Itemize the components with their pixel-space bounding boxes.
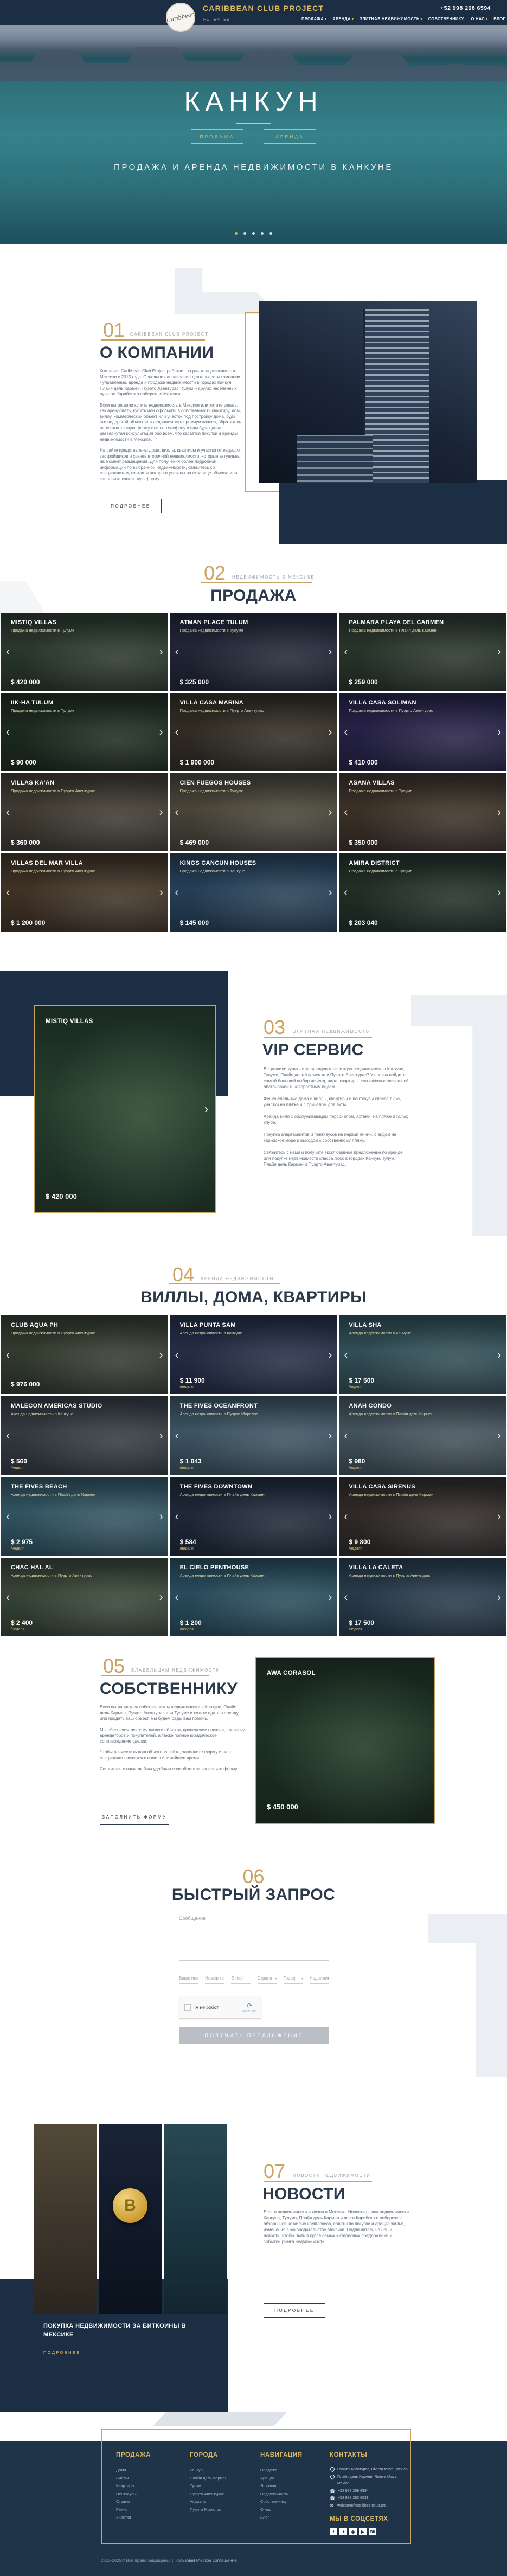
footer-column-sale: ПРОДАЖА ДомаВиллыКвартирыПентхаусыСтудии…	[116, 2452, 190, 2535]
hero-skyline-image	[0, 47, 507, 81]
prev-arrow-icon[interactable]: ‹	[175, 646, 179, 658]
price-value: $ 469 000	[180, 839, 209, 846]
section-number: 04	[172, 1263, 194, 1286]
property-price: $ 360 000	[11, 839, 40, 846]
next-arrow-icon[interactable]: ›	[497, 1430, 501, 1441]
paragraph: Мы обеспечим рекламу вашего объекта, про…	[100, 1727, 245, 1745]
property-price: $ 11 900/неделя	[180, 1377, 205, 1389]
prev-arrow-icon[interactable]: ‹	[175, 887, 179, 898]
next-arrow-icon[interactable]: ›	[497, 1511, 501, 1522]
footer-link[interactable]: Аренда	[260, 2475, 330, 2483]
property-title: IIK-HA TULUM	[11, 699, 53, 706]
next-arrow-icon[interactable]: ›	[497, 646, 501, 658]
recaptcha-logo: ⟳ reCAPTCHA	[242, 2002, 256, 2012]
recaptcha-label: Я не робот	[195, 2005, 219, 2010]
property-card[interactable]: VILLAS KA'AN Продажа недвижимости в Пуэр…	[1, 773, 168, 851]
footer-contact-row[interactable]: welcome@caribbeanclub.pro	[330, 2503, 409, 2510]
owner-featured-card[interactable]: AWA CORASOL $ 450 000	[255, 1657, 435, 1824]
price-period: /неделя	[180, 1385, 205, 1389]
contact-icon	[330, 2503, 335, 2508]
next-arrow-icon[interactable]: ›	[159, 1430, 163, 1441]
footer-link[interactable]: Акумаль	[190, 2498, 260, 2506]
paragraph: Компания Caribbean Club Project работает…	[100, 369, 242, 397]
chevron-down-icon: ▾	[275, 1977, 277, 1981]
featured-price: $ 420 000	[46, 1192, 77, 1200]
nav-item-label: СОБСТВЕННИКУ	[428, 16, 464, 21]
hero-sale-button[interactable]: ПРОДАЖА	[191, 129, 243, 144]
footer-link[interactable]: Канкун	[190, 2466, 260, 2475]
price-value: $ 17 500	[349, 1377, 374, 1384]
property-card[interactable]: MISTIQ VILLAS Продажа недвижимости в Тул…	[1, 613, 168, 691]
sale-heading: ПРОДАЖА	[0, 587, 507, 605]
price-value: $ 1 200	[180, 1619, 202, 1627]
section-rule	[264, 1037, 372, 1038]
nav-item[interactable]: ЭЛИТНАЯ НЕДВИЖИМОСТЬ▾	[360, 16, 422, 21]
property-title: VILLA CASA SIRENUS	[349, 1483, 415, 1490]
footer-contact-row[interactable]: Плайя дель Кармен, Riviera Maya, Mexico	[330, 2474, 409, 2488]
nav-item[interactable]: СОБСТВЕННИКУ	[428, 16, 465, 21]
contact-text: Пуэрто Авентурас, Riviera Maya, Mexico	[337, 2466, 408, 2474]
social-icon[interactable]: ◉	[349, 2528, 357, 2535]
hero-underline	[236, 123, 271, 124]
property-title: PALMARA PLAYA DEL CARMEN	[349, 619, 444, 626]
next-arrow-icon[interactable]: ›	[497, 807, 501, 818]
property-card[interactable]: ASANA VILLAS Продажа недвижимости в Тулу…	[339, 773, 506, 851]
prev-arrow-icon[interactable]: ‹	[344, 1591, 348, 1603]
property-location: Аренда недвижимости в Плайя дель Кармен	[11, 1492, 95, 1497]
page: КАНКУН ПРОДАЖА АРЕНДА ПРОДАЖА И АРЕНДА Н…	[0, 0, 507, 2576]
section-number: 02	[204, 562, 226, 584]
slider-dot[interactable]	[261, 232, 264, 235]
rent-heading: ВИЛЛЫ, ДОМА, КВАРТИРЫ	[0, 1288, 507, 1307]
section-tagline: НЕДВИЖИМОСТЬ В МЕКСИКЕ	[232, 575, 315, 580]
property-location: Продажа недвижимости в Плайя дель Кармен	[349, 628, 436, 633]
prev-arrow-icon[interactable]: ‹	[175, 727, 179, 738]
submit-button[interactable]: ПОЛУЧИТЬ ПРЕДЛОЖЕНИЕ	[179, 2027, 329, 2044]
property-location: Продажа недвижимости в Пуэрто Авентурас	[180, 708, 264, 713]
prev-arrow-icon[interactable]: ‹	[6, 887, 10, 898]
price-value: $ 9 800	[349, 1538, 370, 1546]
form-fields-row: ▾ ▾ ▾	[179, 1973, 329, 1984]
footer-link[interactable]: Недвижимость	[260, 2490, 330, 2498]
property-title: THE FIVES BEACH	[11, 1483, 67, 1490]
footer-column-title: ГОРОДА	[190, 2452, 260, 2458]
footer-link[interactable]: Элитная	[260, 2482, 330, 2490]
property-title: CLUB AQUA PH	[11, 1322, 58, 1328]
copyright: 2015-2025© Все права защищены. | Пользов…	[101, 2558, 237, 2563]
prev-arrow-icon[interactable]: ‹	[6, 727, 10, 738]
property-title: VILLA SHA	[349, 1322, 381, 1328]
property-location: Продажа недвижимости в Пуэрто Авентурас	[11, 788, 95, 793]
prev-arrow-icon[interactable]: ‹	[344, 646, 348, 658]
prev-arrow-icon[interactable]: ‹	[6, 1591, 10, 1603]
social-icon[interactable]: ▶	[359, 2528, 367, 2535]
property-price: $ 976 000	[11, 1380, 40, 1389]
next-arrow-icon[interactable]: ›	[328, 1511, 332, 1522]
next-arrow-icon[interactable]: ›	[497, 1591, 501, 1603]
owner-form-button[interactable]: ЗАПОЛНИТЬ ФОРМУ	[100, 1810, 169, 1825]
footer-link[interactable]: Квартиры	[116, 2482, 190, 2490]
section-rule	[264, 2181, 372, 2182]
recaptcha-widget: Я не робот ⟳ reCAPTCHA	[179, 1996, 261, 2019]
property-card[interactable]: ANAH CONDO Аренда недвижимости в Плайя д…	[339, 1396, 506, 1475]
price-value: $ 1 200 000	[11, 919, 45, 927]
prev-arrow-icon[interactable]: ‹	[344, 1430, 348, 1441]
news-heading: НОВОСТИ	[262, 2185, 345, 2204]
property-title: CHAC HAL AL	[11, 1564, 53, 1571]
news-photo-strip[interactable]: B	[99, 2124, 162, 2314]
news-feature-title[interactable]: Покупка недвижимости за биткоины в Мекси…	[43, 2322, 211, 2339]
property-location: Аренда недвижимости в Пуэрто Морелос	[180, 1411, 258, 1416]
property-title: VILLA LA CALETA	[349, 1564, 403, 1571]
property-card[interactable]: KINGS CANCUN HOUSES Продажа недвижимости…	[170, 853, 337, 932]
next-arrow-icon[interactable]: ›	[497, 1349, 501, 1360]
prev-arrow-icon[interactable]: ‹	[344, 727, 348, 738]
property-title: VILLAS DEL MAR VILLA	[11, 860, 83, 866]
news-feature-link[interactable]: ПОДРОБНЕЕ	[43, 2350, 81, 2355]
property-card[interactable]: CLUB AQUA PH Продажа недвижимости в Пуэр…	[1, 1315, 168, 1394]
sale-grid: MISTIQ VILLAS Продажа недвижимости в Тул…	[1, 613, 506, 932]
chevron-down-icon: ▾	[325, 18, 326, 21]
footer-column-cities: ГОРОДА КанкунПлайя дель КарменТулумПуэрт…	[190, 2452, 260, 2535]
vip-text: Вы решили купить или арендовать элитную …	[264, 1066, 409, 1173]
nav-item-label: ЭЛИТНАЯ НЕДВИЖИМОСТЬ	[360, 16, 420, 21]
paragraph: На сайте представлены дома, виллы, кварт…	[100, 448, 242, 482]
hero-title: КАНКУН	[0, 86, 507, 117]
hero-banner: КАНКУН ПРОДАЖА АРЕНДА ПРОДАЖА И АРЕНДА Н…	[0, 0, 507, 244]
property-location: Продажа недвижимости в Тулуме	[180, 788, 243, 793]
property-card[interactable]: AMIRA DISTRICT Продажа недвижимости в Ту…	[339, 853, 506, 932]
price-value: $ 410 000	[349, 759, 377, 766]
nav-item[interactable]: О НАС▾	[471, 16, 488, 21]
property-price: $ 2 975/неделя	[11, 1538, 33, 1551]
property-title: MALECON AMERICAS STUDIO	[11, 1403, 102, 1409]
property-location: Продажа недвижимости в Тулуме	[180, 628, 243, 633]
contact-text: +52 998 268 6594	[338, 2488, 369, 2495]
price-period: /неделя	[349, 1547, 370, 1551]
text-input[interactable]	[179, 1974, 198, 1984]
language-option[interactable]: ES	[223, 17, 229, 22]
price-value: $ 2 400	[11, 1619, 33, 1627]
hero-rent-button[interactable]: АРЕНДА	[264, 129, 316, 144]
next-arrow-icon[interactable]: ›	[159, 807, 163, 818]
social-icon[interactable]: ✈	[339, 2528, 347, 2535]
prev-arrow-icon[interactable]: ‹	[6, 1430, 10, 1441]
property-card[interactable]: THE FIVES BEACH Аренда недвижимости в Пл…	[1, 1477, 168, 1556]
price-period: /неделя	[349, 1628, 374, 1631]
price-value: $ 90 000	[11, 759, 36, 766]
footer-contact-row[interactable]: +52 998 268 6594	[330, 2488, 409, 2495]
price-value: $ 980	[349, 1457, 365, 1465]
news-more-button[interactable]: ПОДРОБНЕЕ	[264, 2303, 325, 2318]
footer-column-title: ПРОДАЖА	[116, 2452, 190, 2458]
footer-link[interactable]: О нас	[260, 2506, 330, 2514]
next-arrow-icon[interactable]: ›	[159, 646, 163, 658]
brand-logo-text: Caribbean	[166, 11, 195, 23]
building-image	[259, 301, 477, 483]
slider-dot[interactable]	[235, 232, 238, 235]
property-card[interactable]: MALECON AMERICAS STUDIO Аренда недвижимо…	[1, 1396, 168, 1475]
featured-price: $ 450 000	[267, 1803, 298, 1811]
price-value: $ 325 000	[180, 678, 209, 686]
chevron-down-icon: ▾	[301, 1977, 303, 1981]
property-price: $ 410 000	[349, 759, 377, 766]
property-price: $ 2 400/неделя	[11, 1619, 33, 1631]
brand-title: CARIBBEAN CLUB PROJECT	[203, 4, 324, 12]
next-arrow-icon[interactable]: ›	[328, 727, 332, 738]
property-location: Аренда недвижимости в Пуэрто Авентурас	[11, 1573, 92, 1578]
next-arrow-icon[interactable]: ›	[159, 1349, 163, 1360]
property-price: $ 203 040	[349, 919, 377, 927]
news-photo-strip[interactable]	[34, 2124, 97, 2314]
prev-arrow-icon[interactable]: ‹	[6, 807, 10, 818]
section-rule	[201, 582, 312, 583]
footer-link[interactable]: Продажа	[260, 2466, 330, 2475]
watermark-shape	[428, 1914, 507, 2077]
next-arrow-icon[interactable]: ›	[328, 1591, 332, 1603]
property-price: $ 145 000	[180, 919, 209, 927]
property-location: Продажа недвижимости в Пуэрто Авентурас	[349, 708, 433, 713]
section-tagline: CARIBBEAN CLUB PROJECT	[130, 332, 209, 337]
property-location: Аренда недвижимости в Плайя дель Кармен	[180, 1573, 265, 1578]
nav-item[interactable]: ПРОДАЖА▾	[301, 16, 326, 21]
property-title: VILLA PUNTA SAM	[180, 1322, 236, 1328]
hero-subtitle: ПРОДАЖА И АРЕНДА НЕДВИЖИМОСТИ В КАНКУНЕ	[0, 163, 507, 172]
next-arrow-icon[interactable]: ›	[328, 646, 332, 658]
paragraph: Блог о недвижимости и жизни в Мексике. Н…	[264, 2209, 410, 2245]
text-input[interactable]	[258, 1974, 277, 1984]
price-value: $ 360 000	[11, 839, 40, 846]
property-card[interactable]: PALMARA PLAYA DEL CARMEN Продажа недвижи…	[339, 613, 506, 691]
property-location: Продажа недвижимости в Тулуме	[11, 708, 74, 713]
text-input[interactable]	[310, 1974, 329, 1984]
footer-contact-row[interactable]: Пуэрто Авентурас, Riviera Maya, Mexico	[330, 2466, 409, 2474]
property-title: CIEN FUEGOS HOUSES	[180, 780, 251, 786]
property-location: Аренда недвижимости в Канкуне	[180, 1331, 242, 1335]
slider-dot[interactable]	[252, 232, 255, 235]
next-arrow-icon[interactable]: ›	[159, 1591, 163, 1603]
nav-item[interactable]: АРЕНДА▾	[332, 16, 354, 21]
header-phone[interactable]: +52 998 268 6594	[440, 5, 491, 11]
nav-item-label: БЛОГ	[493, 16, 505, 21]
property-title: ASANA VILLAS	[349, 780, 394, 786]
text-input[interactable]	[205, 1974, 224, 1984]
property-location: Продажа недвижимости в Канкуне	[180, 869, 245, 873]
contact-text: +52 998 263 6031	[338, 2495, 369, 2502]
price-period: /неделя	[349, 1385, 374, 1389]
property-location: Аренда недвижимости в Канкуне	[349, 1331, 411, 1335]
section-number: 07	[264, 2160, 285, 2183]
prev-arrow-icon[interactable]: ‹	[6, 1349, 10, 1360]
about-heading: О КОМПАНИИ	[100, 344, 214, 362]
nav-item-label: О НАС	[471, 16, 485, 21]
footer-link[interactable]: Собственнику	[260, 2498, 330, 2506]
paragraph: Свяжитесь с нами и получите эксклюзивное…	[264, 1149, 409, 1167]
slider-dot[interactable]	[269, 232, 272, 235]
prev-arrow-icon[interactable]: ‹	[6, 646, 10, 658]
footer-link[interactable]: Плайя дель Кармен	[190, 2475, 260, 2483]
property-location: Аренда недвижимости в Канкуне	[11, 1411, 73, 1416]
property-location: Продажа недвижимости в Тулуме	[349, 869, 412, 873]
recaptcha-icon: ⟳	[247, 2002, 252, 2009]
next-arrow-icon[interactable]: ›	[328, 1349, 332, 1360]
property-price: $ 17 500/неделя	[349, 1619, 374, 1631]
footer-link[interactable]: Студии	[116, 2498, 190, 2506]
news-photo-strip[interactable]	[164, 2124, 227, 2314]
form-field: ▾	[284, 1973, 303, 1984]
contact-icon	[330, 2467, 335, 2472]
section-tagline: НОВОСТИ НЕДВИЖИМОСТИ	[293, 2173, 370, 2178]
property-card[interactable]: VILLA SHA Аренда недвижимости в Канкуне …	[339, 1315, 506, 1394]
vip-featured-card[interactable]: MISTIQ VILLAS $ 420 000 ›	[34, 1005, 216, 1213]
recaptcha-checkbox[interactable]	[184, 2004, 191, 2011]
language-option[interactable]: EN	[214, 17, 220, 22]
contact-icon	[330, 2489, 335, 2494]
property-location: Аренда недвижимости в Плайя дель Кармен	[349, 1411, 433, 1416]
footer-link[interactable]: Ранчо	[116, 2506, 190, 2514]
footer-columns: ПРОДАЖА ДомаВиллыКвартирыПентхаусыСтудии…	[116, 2452, 409, 2535]
price-value: $ 420 000	[11, 678, 40, 686]
contact-text: welcome@caribbeanclub.pro	[337, 2503, 386, 2510]
section-rule	[169, 1283, 280, 1284]
property-card[interactable]: VILLA PUNTA SAM Аренда недвижимости в Ка…	[170, 1315, 337, 1394]
owner-heading: СОБСТВЕННИКУ	[100, 1680, 238, 1698]
owner-text: Если вы являетесь собственником недвижим…	[100, 1705, 245, 1778]
property-location: Аренда недвижимости в Плайя дель Кармен	[180, 1492, 265, 1497]
property-title: AMIRA DISTRICT	[349, 860, 400, 866]
next-arrow-icon[interactable]: ›	[159, 1511, 163, 1522]
next-arrow-icon[interactable]: ›	[328, 1430, 332, 1441]
property-card[interactable]: VILLAS DEL MAR VILLA Продажа недвижимост…	[1, 853, 168, 932]
slider-dot[interactable]	[243, 232, 246, 235]
text-input[interactable]	[231, 1974, 251, 1984]
podium-graphic	[297, 435, 373, 483]
prev-arrow-icon[interactable]: ‹	[175, 1511, 179, 1522]
footer-social-title: МЫ В СОЦСЕТЯХ	[330, 2516, 409, 2522]
copyright-text: 2015-2025© Все права защищены. |	[101, 2558, 174, 2563]
next-arrow-icon[interactable]: ›	[328, 887, 332, 898]
news-text: Блог о недвижимости и жизни в Мексике. Н…	[264, 2209, 410, 2250]
property-card[interactable]: VILLA CASA SIRENUS Аренда недвижимости в…	[339, 1477, 506, 1556]
property-location: Продажа недвижимости в Пуэрто Авентурас	[11, 869, 95, 873]
next-arrow-icon[interactable]: ›	[497, 727, 501, 738]
property-card[interactable]: VILLA LA CALETA Аренда недвижимости в Пу…	[339, 1558, 506, 1636]
text-input[interactable]	[284, 1974, 303, 1984]
prev-arrow-icon[interactable]: ‹	[175, 1349, 179, 1360]
prev-arrow-icon[interactable]: ‹	[344, 807, 348, 818]
footer-link[interactable]: Блог	[260, 2514, 330, 2522]
prev-arrow-icon[interactable]: ‹	[175, 1430, 179, 1441]
form-field	[205, 1973, 224, 1984]
property-card[interactable]: CHAC HAL AL Аренда недвижимости в Пуэрто…	[1, 1558, 168, 1636]
price-period: /неделя	[180, 1628, 202, 1631]
prev-arrow-icon[interactable]: ‹	[344, 887, 348, 898]
section-tagline: АРЕНДА НЕДВИЖИМОСТИ	[201, 1276, 274, 1281]
paragraph: Аренда вилл с обслуживающим персоналом, …	[264, 1114, 409, 1126]
property-card[interactable]: IIK-HA TULUM Продажа недвижимости в Тулу…	[1, 693, 168, 771]
prev-arrow-icon[interactable]: ‹	[344, 1511, 348, 1522]
property-title: VILLA CASA MARINA	[180, 699, 243, 706]
footer-contact-row[interactable]: +52 998 263 6031	[330, 2495, 409, 2502]
next-arrow-icon[interactable]: ›	[159, 727, 163, 738]
nav-item[interactable]: БЛОГ	[493, 16, 506, 21]
property-price: $ 420 000	[11, 678, 40, 686]
property-price: $ 325 000	[180, 678, 209, 686]
next-arrow-icon[interactable]: ›	[497, 887, 501, 898]
property-card[interactable]: VILLA CASA MARINA Продажа недвижимости в…	[170, 693, 337, 771]
prev-arrow-icon[interactable]: ‹	[175, 1591, 179, 1603]
contact-icon	[330, 2475, 335, 2479]
property-title: VILLA CASA SOLIMAN	[349, 699, 416, 706]
quick-request-form: ▾ ▾ ▾ Я не робот ⟳ reCAPTCHA ПОЛУЧИ	[179, 1914, 329, 2044]
footer-link[interactable]: Пуэрто Авентурас	[190, 2490, 260, 2498]
price-period: /неделя	[349, 1466, 365, 1470]
property-price: $ 1 200/неделя	[180, 1619, 202, 1631]
recaptcha-brand: reCAPTCHA	[242, 2009, 256, 2012]
next-arrow-icon[interactable]: ›	[328, 807, 332, 818]
footer-link[interactable]: Виллы	[116, 2475, 190, 2483]
property-card[interactable]: CIEN FUEGOS HOUSES Продажа недвижимости …	[170, 773, 337, 851]
price-value: $ 560	[11, 1457, 27, 1465]
property-card[interactable]: VILLA CASA SOLIMAN Продажа недвижимости …	[339, 693, 506, 771]
property-card[interactable]: THE FIVES DOWNTOWN Аренда недвижимости в…	[170, 1477, 337, 1556]
footer-link[interactable]: Пуэрто Морелос	[190, 2506, 260, 2514]
social-icon[interactable]: ВК	[369, 2528, 376, 2535]
next-arrow-icon[interactable]: ›	[204, 1103, 208, 1116]
footer-link[interactable]: Пентхаусы	[116, 2490, 190, 2498]
navy-panel	[279, 480, 507, 544]
social-icon[interactable]: f	[330, 2528, 337, 2535]
about-more-button[interactable]: ПОДРОБНЕЕ	[100, 499, 162, 513]
form-field: ▾	[310, 1973, 329, 1984]
price-value: $ 259 000	[349, 678, 377, 686]
language-switcher: RUENES	[203, 17, 229, 22]
property-title: THE FIVES OCEANFRONT	[180, 1403, 258, 1409]
message-input[interactable]	[179, 1914, 329, 1961]
price-value: $ 145 000	[180, 919, 209, 927]
property-location: Продажа недвижимости в Пуэрто Авентурас	[11, 1331, 95, 1335]
footer-link[interactable]: Дома	[116, 2466, 190, 2475]
prev-arrow-icon[interactable]: ‹	[344, 1349, 348, 1360]
price-value: $ 11 900	[180, 1377, 205, 1384]
main-nav: ПРОДАЖА▾АРЕНДА▾ЭЛИТНАЯ НЕДВИЖИМОСТЬ▾СОБС…	[301, 16, 506, 21]
property-card[interactable]: THE FIVES OCEANFRONT Аренда недвижимости…	[170, 1396, 337, 1475]
property-price: $ 17 500/неделя	[349, 1377, 374, 1389]
brand-logo[interactable]: Caribbean	[166, 3, 195, 32]
property-card[interactable]: ATMAN PLACE TULUM Продажа недвижимости в…	[170, 613, 337, 691]
section-number: 03	[264, 1016, 285, 1039]
footer-link[interactable]: Тулум	[190, 2482, 260, 2490]
contact-text: Плайя дель Кармен, Riviera Maya, Mexico	[337, 2474, 409, 2488]
section-number: 05	[103, 1655, 125, 1678]
property-title: VILLAS KA'AN	[11, 780, 54, 786]
property-card[interactable]: EL CIELO PENTHOUSE Аренда недвижимости в…	[170, 1558, 337, 1636]
section-tagline: ЭЛИТНАЯ НЕДВИЖИМОСТЬ	[293, 1029, 370, 1034]
terms-link[interactable]: Пользовательское соглашение	[174, 2558, 236, 2563]
section-rule	[101, 339, 205, 341]
prev-arrow-icon[interactable]: ‹	[175, 807, 179, 818]
property-location: Продажа недвижимости в Тулуме	[349, 788, 412, 793]
social-icons: f✈◉▶ВК	[330, 2528, 409, 2535]
property-price: $ 1 043/неделя	[180, 1457, 202, 1470]
prev-arrow-icon[interactable]: ‹	[6, 1511, 10, 1522]
next-arrow-icon[interactable]: ›	[159, 887, 163, 898]
section-tagline: ВЛАДЕЛЬЦАМ НЕДВИЖИМОСТИ	[131, 1668, 220, 1673]
form-field	[179, 1973, 198, 1984]
footer-link[interactable]: Участки	[116, 2514, 190, 2522]
vip-heading: VIP СЕРВИС	[262, 1041, 364, 1059]
language-option[interactable]: RU	[203, 17, 210, 22]
